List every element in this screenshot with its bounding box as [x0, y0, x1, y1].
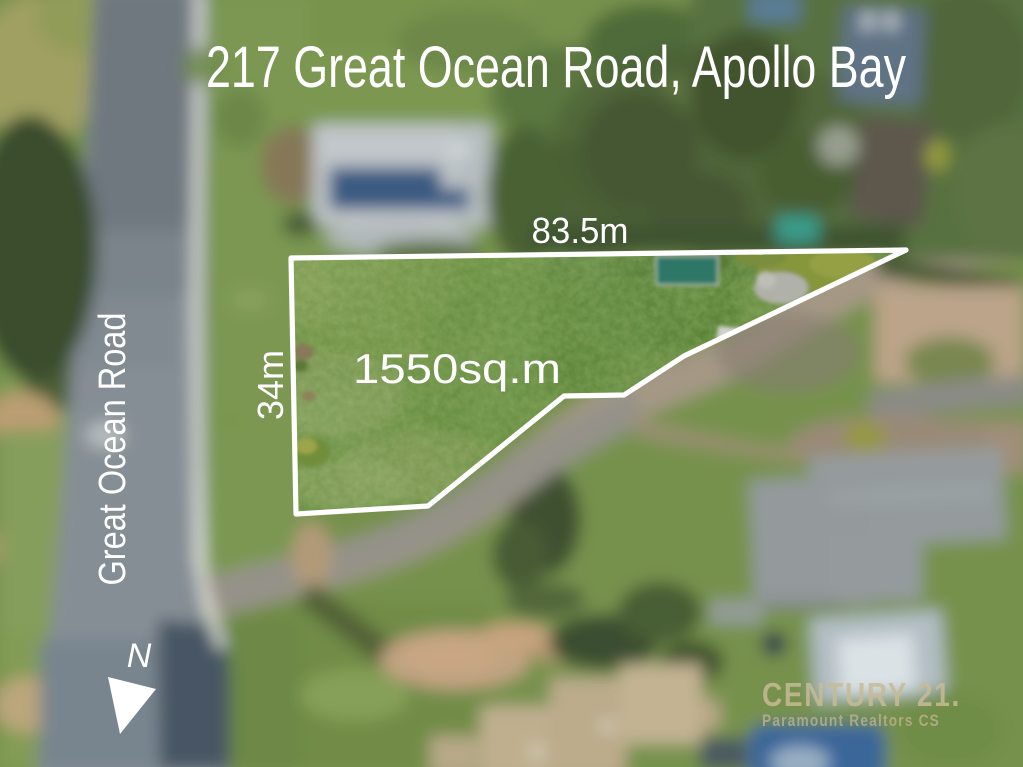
svg-text:CENTURY 21.: CENTURY 21.: [762, 676, 961, 713]
svg-text:Paramount Realtors CS: Paramount Realtors CS: [762, 711, 940, 730]
svg-text:N: N: [127, 637, 152, 675]
svg-text:83.5m: 83.5m: [532, 210, 629, 251]
svg-text:34m: 34m: [250, 350, 291, 420]
svg-text:217 Great Ocean Road, Apollo B: 217 Great Ocean Road, Apollo Bay: [206, 35, 906, 100]
svg-text:Great Ocean Road: Great Ocean Road: [92, 313, 134, 586]
svg-text:1550sq.m: 1550sq.m: [353, 345, 561, 392]
